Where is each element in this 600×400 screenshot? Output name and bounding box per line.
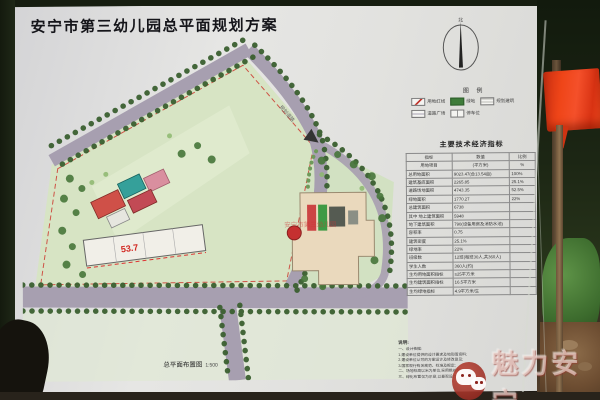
sheet-label: 总平面布置图1:500: [163, 358, 218, 368]
table-cell: 25.1%: [509, 178, 535, 187]
legend-title: 图 例: [411, 85, 537, 95]
legend-item: 规划建筑: [480, 97, 514, 105]
billboard: 安宁市第三幼儿园总平面规划方案: [12, 3, 541, 395]
table-row: 生均绿地指标4.9平方米/生: [407, 286, 536, 295]
table-cell: [510, 278, 536, 287]
table-cell: [510, 203, 536, 212]
wechat-bubble-small: [471, 377, 486, 390]
road-swatch-icon: [411, 110, 425, 118]
legend-item-label: 规划建筑: [496, 98, 514, 104]
technical-indicator-table: 指标 数值 比例 用地项目 (平方米) % 总用地面积9023.47(合13.5…: [406, 152, 537, 296]
table-cell: 22%: [510, 194, 536, 203]
sheet-scale: 1:500: [205, 362, 218, 368]
legend-item: 道路广场: [411, 110, 445, 118]
parking-swatch-icon: [450, 110, 464, 118]
redline-swatch-icon: [411, 98, 425, 106]
watermark-text: 魅力安宁: [491, 342, 600, 400]
legend-item-label: 停车位: [466, 110, 480, 116]
table-cell: 52.5%: [509, 186, 535, 195]
site-name-overlay: 安宁市第三幼儿园: [284, 220, 336, 229]
table-cell: 总用地面积: [406, 170, 452, 179]
red-flag: [543, 68, 600, 132]
header-ratio: 比例: [509, 152, 535, 161]
table-cell: 4.9平方米/生: [453, 286, 511, 295]
compass: 北: [441, 17, 482, 83]
lower-green-wash: [23, 308, 409, 382]
legend-item: 用地红线: [411, 98, 445, 106]
photo-of-planning-billboard: 安宁市第三幼儿园总平面规划方案: [0, 0, 600, 400]
header-indicator: 指标: [406, 153, 452, 162]
unit-indicator: 用地项目: [406, 161, 452, 170]
legend-items: 用地红线绿地规划建筑道路广场停车位: [411, 97, 537, 118]
compass-dial: [443, 24, 479, 70]
sheet-name: 总平面布置图: [163, 362, 202, 369]
table-cell: [510, 286, 536, 295]
legend: 图 例 用地红线绿地规划建筑道路广场停车位: [411, 85, 537, 118]
table-cell: 100%: [509, 169, 535, 178]
legend-item-label: 用地红线: [427, 99, 445, 105]
green-swatch-icon: [450, 98, 464, 106]
table-cell: [510, 261, 536, 270]
legend-item-label: 绿地: [466, 98, 475, 104]
foliage-top-strip: [0, 0, 600, 6]
table-cell: [510, 253, 536, 262]
technical-indicator-panel: 主要技术经济指标 指标 数值 比例 用地项目 (平方米) % 总用地面积9023…: [406, 139, 539, 296]
wechat-icon: [452, 362, 486, 400]
table-cell: 生均绿地指标: [407, 287, 453, 296]
legend-item-label: 道路广场: [427, 111, 445, 117]
plan-title: 安宁市第三幼儿园总平面规划方案: [31, 14, 279, 37]
building-swatch-icon: [480, 97, 494, 105]
legend-item: 绿地: [450, 97, 475, 105]
table-title: 主要技术经济指标: [406, 139, 538, 150]
site-plan-drawing: 53.7 安宁市第三幼儿园 规划道路: [21, 34, 409, 382]
compass-needle-icon: [459, 22, 463, 68]
table-cell: [510, 269, 536, 278]
unit-ratio: %: [509, 161, 535, 170]
watermark: 魅力安宁: [452, 342, 600, 400]
legend-item: 停车位: [450, 109, 480, 117]
